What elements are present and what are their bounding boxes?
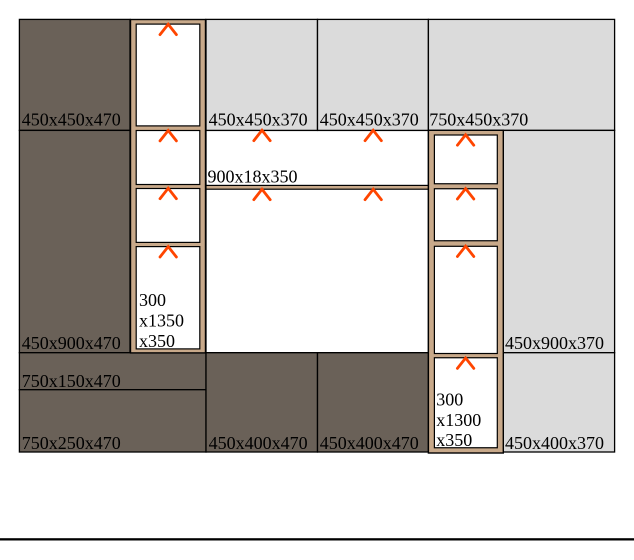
svg-text:450x900x370: 450x900x370 <box>505 333 604 353</box>
svg-text:450x450x370: 450x450x370 <box>320 110 419 130</box>
svg-text:450x900x470: 450x900x470 <box>22 333 121 353</box>
svg-text:x350: x350 <box>139 331 175 351</box>
svg-text:450x400x370: 450x400x370 <box>505 433 604 453</box>
svg-text:300: 300 <box>436 389 463 409</box>
svg-text:x350: x350 <box>436 430 472 450</box>
svg-text:300: 300 <box>139 290 166 310</box>
svg-text:900x18x350: 900x18x350 <box>208 166 298 186</box>
svg-text:450x450x370: 450x450x370 <box>209 110 308 130</box>
svg-text:750x150x470: 750x150x470 <box>22 371 121 391</box>
svg-text:450x400x470: 450x400x470 <box>209 433 308 453</box>
svg-text:750x450x370: 750x450x370 <box>429 110 528 130</box>
svg-text:x1350: x1350 <box>139 310 184 330</box>
svg-text:450x450x470: 450x450x470 <box>22 110 121 130</box>
svg-text:750x250x470: 750x250x470 <box>22 433 121 453</box>
svg-text:x1300: x1300 <box>436 410 481 430</box>
svg-text:450x400x470: 450x400x470 <box>320 433 419 453</box>
